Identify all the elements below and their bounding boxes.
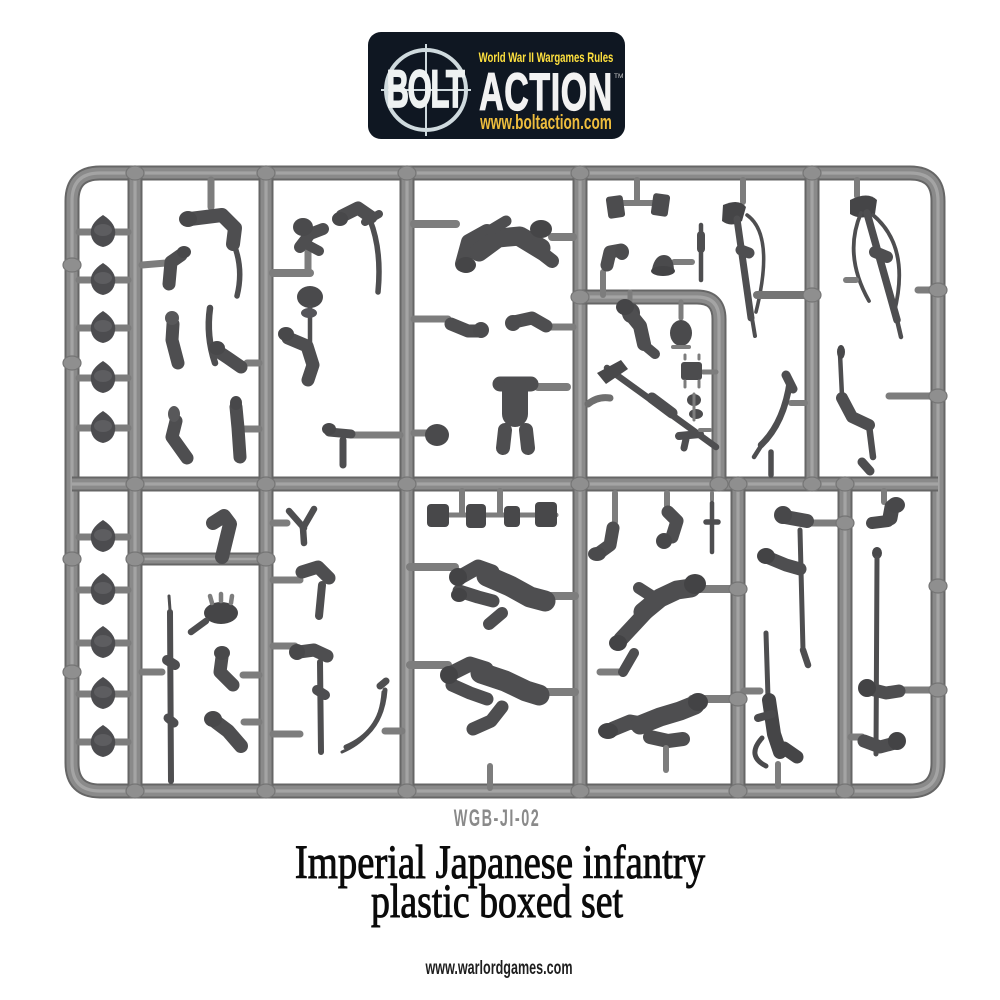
svg-text:plastic boxed set: plastic boxed set: [371, 875, 623, 928]
svg-text:WGB-JI-02: WGB-JI-02: [454, 805, 541, 832]
svg-text:www.warlordgames.com: www.warlordgames.com: [425, 957, 573, 978]
svg-text:BOLT: BOLT: [386, 61, 465, 120]
svg-text:TM: TM: [614, 73, 623, 80]
svg-text:www.boltaction.com: www.boltaction.com: [479, 111, 611, 133]
